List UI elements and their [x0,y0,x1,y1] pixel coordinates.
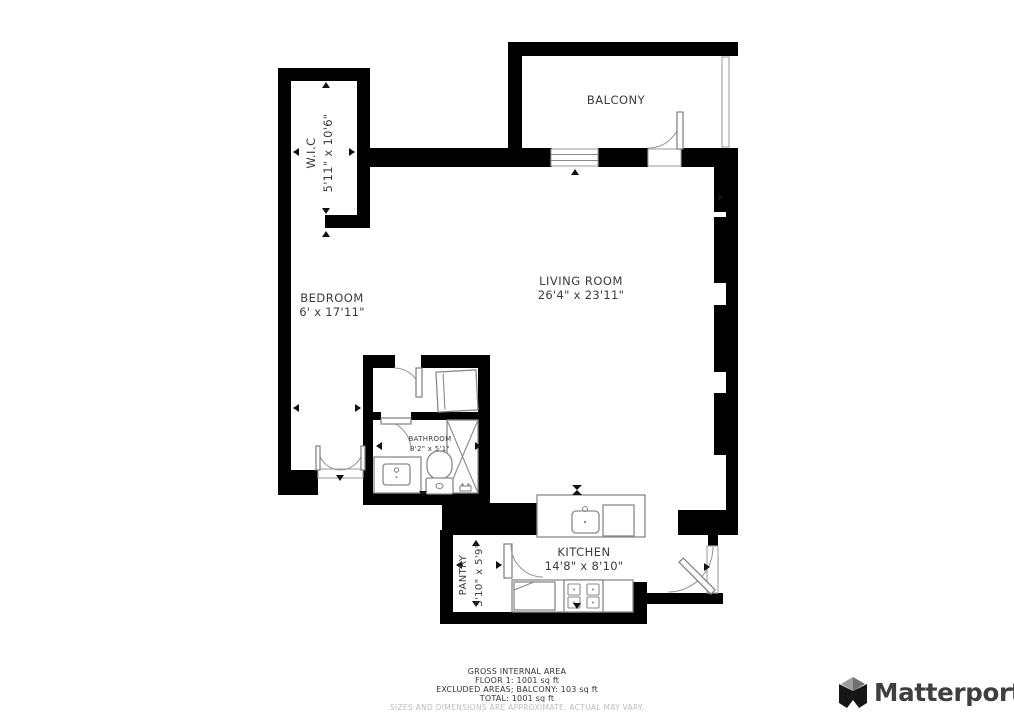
closet-right-wall [478,355,490,505]
matterport-logo-icon [839,677,867,708]
right-wall-column-3 [714,305,738,372]
pantry-left-wall [440,530,453,624]
right-wall-column-2 [714,217,738,283]
bedroom-door-leaf-right [361,446,365,470]
balcony-left-wall [508,42,522,167]
closet-divider-wall [425,412,478,420]
balcony-top-wall [508,42,738,56]
wic-label: W.I.C [304,137,318,168]
top-wall-right [681,148,738,167]
bedroom-dims: 6' x 17'11" [299,305,365,319]
kitchen-dims: 14'8" x 8'10" [545,559,624,573]
balcony-door-arc [648,115,681,148]
balcony-door-leaf [677,112,683,149]
bedroom-label: BEDROOM [300,291,364,305]
floor-plan-canvas: BALCONY LIVING ROOM 26'4" x 23'11" BEDRO… [0,0,1014,714]
bathroom-door-arc [381,420,411,451]
pantry-door-arc [511,545,543,577]
walls [278,42,738,624]
bedroom-bottom-wall [278,470,318,495]
bathroom-door-leaf [381,418,411,424]
balcony-railing [722,57,729,147]
dishwasher [603,505,634,536]
total-area-line: TOTAL: 1001 sq ft [479,694,555,703]
living-room-window [551,149,598,166]
gross-internal-area-heading: GROSS INTERNAL AREA [468,667,567,676]
matterport-logo-text: Matterport [874,678,1014,707]
living-room-dims: 26'4" x 23'11" [538,288,624,302]
living-room-label: LIVING ROOM [539,274,623,288]
pantry-top-block [442,503,538,535]
excluded-area-line: EXCLUDED AREAS; BALCONY: 103 sq ft [436,685,598,694]
top-wall-left [357,148,552,167]
bath-nook-wall-left [373,412,381,420]
right-wall-column-4 [714,393,738,455]
balcony-label: BALCONY [587,93,646,107]
floor-plan-page: BALCONY LIVING ROOM 26'4" x 23'11" BEDRO… [0,0,1014,714]
closet-door-leaf [416,368,422,397]
bedroom-door-leaf-left [316,446,320,470]
stove [564,580,603,612]
top-wall-mid [598,148,648,167]
bathroom-left-wall [363,363,373,495]
wic-dims: 5'11" x 10'6" [321,114,335,193]
bathroom-top-wall [363,355,395,368]
disclaimer-text: SIZES AND DIMENSIONS ARE APPROXIMATE, AC… [390,703,644,712]
kitchen-island [537,495,645,537]
pantry-label: PANTRY [458,554,469,595]
washer [436,370,478,412]
bathroom-sink [374,457,421,493]
bathroom-label: BATHROOM [409,435,452,443]
left-exterior-wall [278,68,291,495]
kitchen-label: KITCHEN [557,545,610,559]
entry-wall-block [678,510,738,535]
bathroom-bottom-wall [363,493,490,505]
kitchen-bottom-wall [440,612,647,624]
fridge [514,582,555,610]
bedroom-door-arc-left [318,447,341,470]
entry-bottom-wall [647,593,723,604]
wic-top-wall [278,68,370,81]
right-wall-column-1 [714,167,738,212]
toilet [426,451,453,494]
balcony-door-threshold [648,149,681,166]
bath-nook-wall-right [411,412,425,420]
pantry-dims: 3'10" x 5'9" [474,543,485,607]
wic-bottom-wall [325,215,370,228]
matterport-logo: Matterport [839,677,1014,708]
floor-area-line: FLOOR 1: 1001 sq ft [475,676,559,685]
footer-summary: GROSS INTERNAL AREA FLOOR 1: 1001 sq ft … [390,667,644,712]
bathroom-dims: 8'2" x 5'1" [410,445,450,453]
bedroom-door-arc-right [340,447,363,470]
kitchen-counter [512,580,633,612]
entry-door-jamb [708,535,718,547]
